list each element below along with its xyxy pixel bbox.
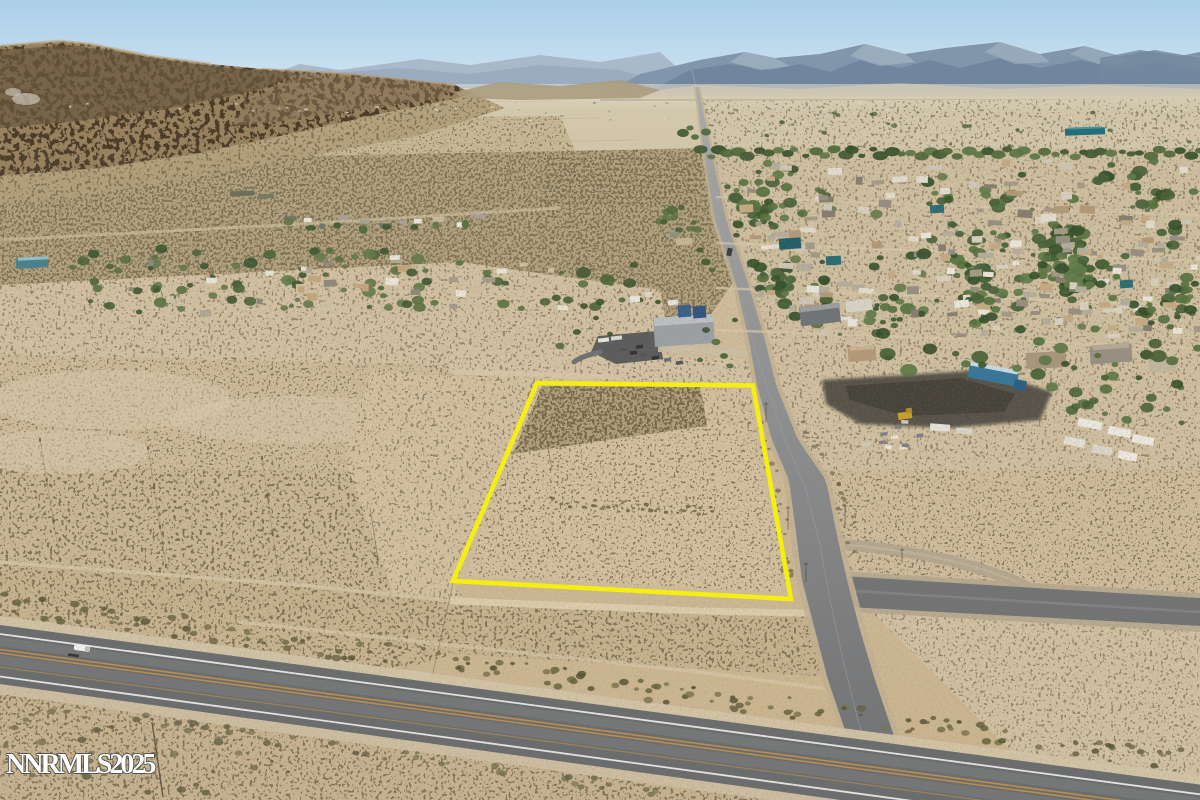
svg-text:NNRMLS2025: NNRMLS2025 <box>6 749 155 780</box>
